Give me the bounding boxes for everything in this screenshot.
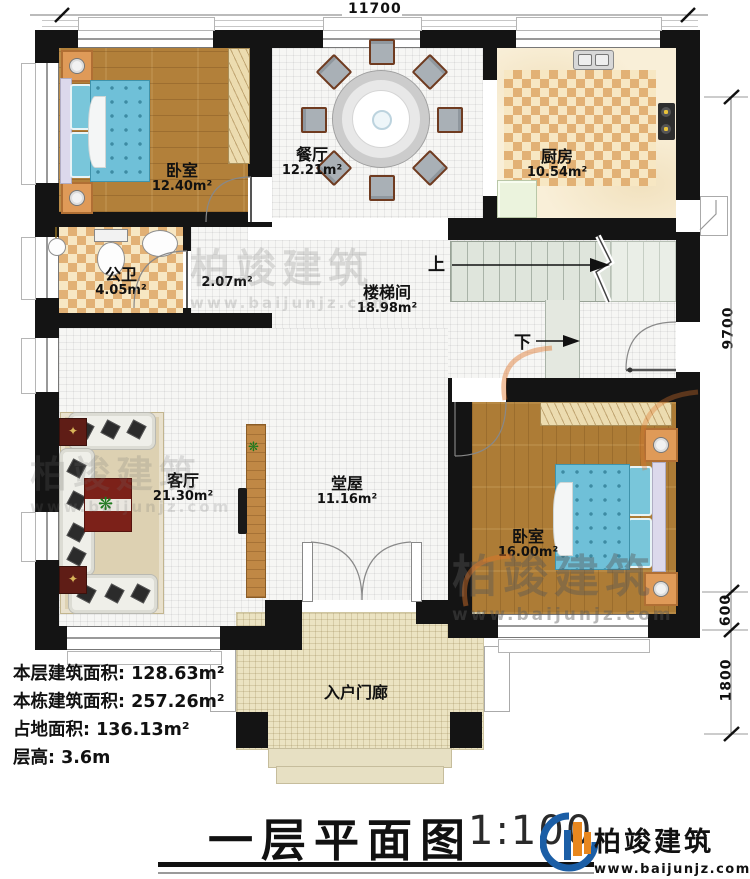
kitchen-sink: [573, 50, 614, 70]
window-living-left-upper: [35, 338, 59, 392]
porch-side-wall-right: [484, 646, 510, 712]
pillow: [628, 466, 652, 516]
dining-chair: [369, 175, 395, 201]
plant-icon: ❋: [98, 494, 113, 515]
window-kitchen-top: [516, 30, 660, 48]
window-living-bottom: [67, 626, 220, 650]
stat-line: 本层建筑面积: 128.63m²: [13, 660, 225, 688]
sill: [21, 237, 36, 300]
fridge: [497, 180, 537, 218]
shower-head: [48, 238, 66, 256]
window-living-left-lower: [35, 512, 59, 560]
wall-bedroom1-bottom: [35, 212, 272, 227]
stair-flight-up: [450, 241, 612, 302]
dim-right-step: 600: [718, 594, 734, 626]
toilet-tank: [94, 229, 128, 242]
wall-kitchen-left-upper: [483, 48, 497, 80]
nightstand: [61, 182, 93, 214]
entry-door-leaf-right: [411, 542, 422, 602]
window-bedroom1-left: [35, 63, 59, 183]
kitchen-side-landing: [700, 196, 728, 236]
stair-flight-down: [545, 300, 580, 378]
bathroom-door-opening: [183, 251, 191, 308]
brand-block: 柏竣建筑 www.baijunjz.com: [594, 820, 750, 877]
sill: [21, 338, 36, 394]
dining-chair: [369, 39, 395, 65]
bedroom1-wardrobe: [228, 48, 250, 164]
dim-right-porch: 1800: [718, 659, 734, 702]
side-door-opening: [676, 322, 700, 372]
plant-icon: ❋: [248, 440, 259, 455]
dining-table-dish: [372, 110, 392, 130]
porch-step2: [276, 766, 444, 784]
dining-chair: [437, 107, 463, 133]
stat-line: 层高: 3.6m: [13, 744, 225, 772]
page-title: 一层平面图: [208, 804, 473, 869]
dining-chair: [301, 107, 327, 133]
bed2-headboard: [652, 462, 666, 572]
window-bedroom2-bottom: [498, 614, 648, 638]
kitchen-stove: [658, 103, 675, 140]
corner-cabinet: ✦: [59, 566, 87, 594]
stairs-up-label: 上: [428, 250, 445, 275]
stair-flight-cut: [610, 241, 678, 302]
brand-url: www.baijunjz.com: [594, 862, 750, 877]
floor-plan: ✦ ✦ ❋ ❋ 卧室12.40m² 餐厅12.21m² 厨房10.54m² 公卫…: [0, 0, 750, 879]
porch-pier-left: [236, 712, 268, 748]
sill: [323, 17, 422, 31]
window-bedroom1-top: [78, 30, 213, 48]
sill: [498, 639, 650, 653]
toilet-bowl: [97, 242, 125, 276]
wall-bedroom2-left: [448, 378, 472, 638]
sill: [21, 63, 36, 185]
stairs-down-label: 下: [514, 328, 531, 353]
entry-door-leaf-left: [302, 542, 313, 602]
pillow: [628, 518, 652, 568]
bed2-sheet: [553, 482, 573, 556]
porch-step1: [268, 748, 452, 768]
nightstand: [644, 572, 678, 606]
wall-bottom-hall-right: [416, 600, 448, 624]
stat-line: 本栋建筑面积: 257.26m²: [13, 688, 225, 716]
tv: [238, 488, 247, 534]
wall-bathroom-bottom: [35, 313, 272, 328]
bedroom2-wardrobe: [540, 402, 672, 426]
title-rule-thick: [158, 862, 594, 867]
wall-bedroom1-right: [248, 48, 272, 177]
sill: [21, 512, 36, 562]
bedroom2-door-opening: [452, 378, 506, 402]
porch-pier-right: [450, 712, 482, 748]
dim-right-total: 9700: [720, 307, 736, 350]
bed1-sheet: [88, 96, 106, 168]
dim-top: 11700: [348, 1, 402, 17]
wall-kitchen-left-lower: [483, 196, 497, 218]
corner-cabinet: ✦: [59, 418, 87, 446]
wall-kitchen-bottom: [448, 218, 700, 240]
brand-name: 柏竣建筑: [594, 820, 750, 859]
sill: [78, 17, 215, 31]
sill: [516, 17, 662, 31]
nightstand: [644, 428, 678, 462]
bath-sink: [142, 230, 178, 257]
area-stats: 本层建筑面积: 128.63m² 本栋建筑面积: 257.26m² 占地面积: …: [13, 660, 225, 772]
kitchen-rug: [504, 70, 656, 186]
wall-bottom-hall-left: [265, 600, 302, 650]
stat-line: 占地面积: 136.13m²: [13, 716, 225, 744]
kitchen-side-opening: [676, 200, 700, 232]
bedroom1-door-opening: [248, 177, 272, 222]
title-rule-thin: [158, 872, 594, 874]
brand-logo-icon: [540, 812, 598, 872]
